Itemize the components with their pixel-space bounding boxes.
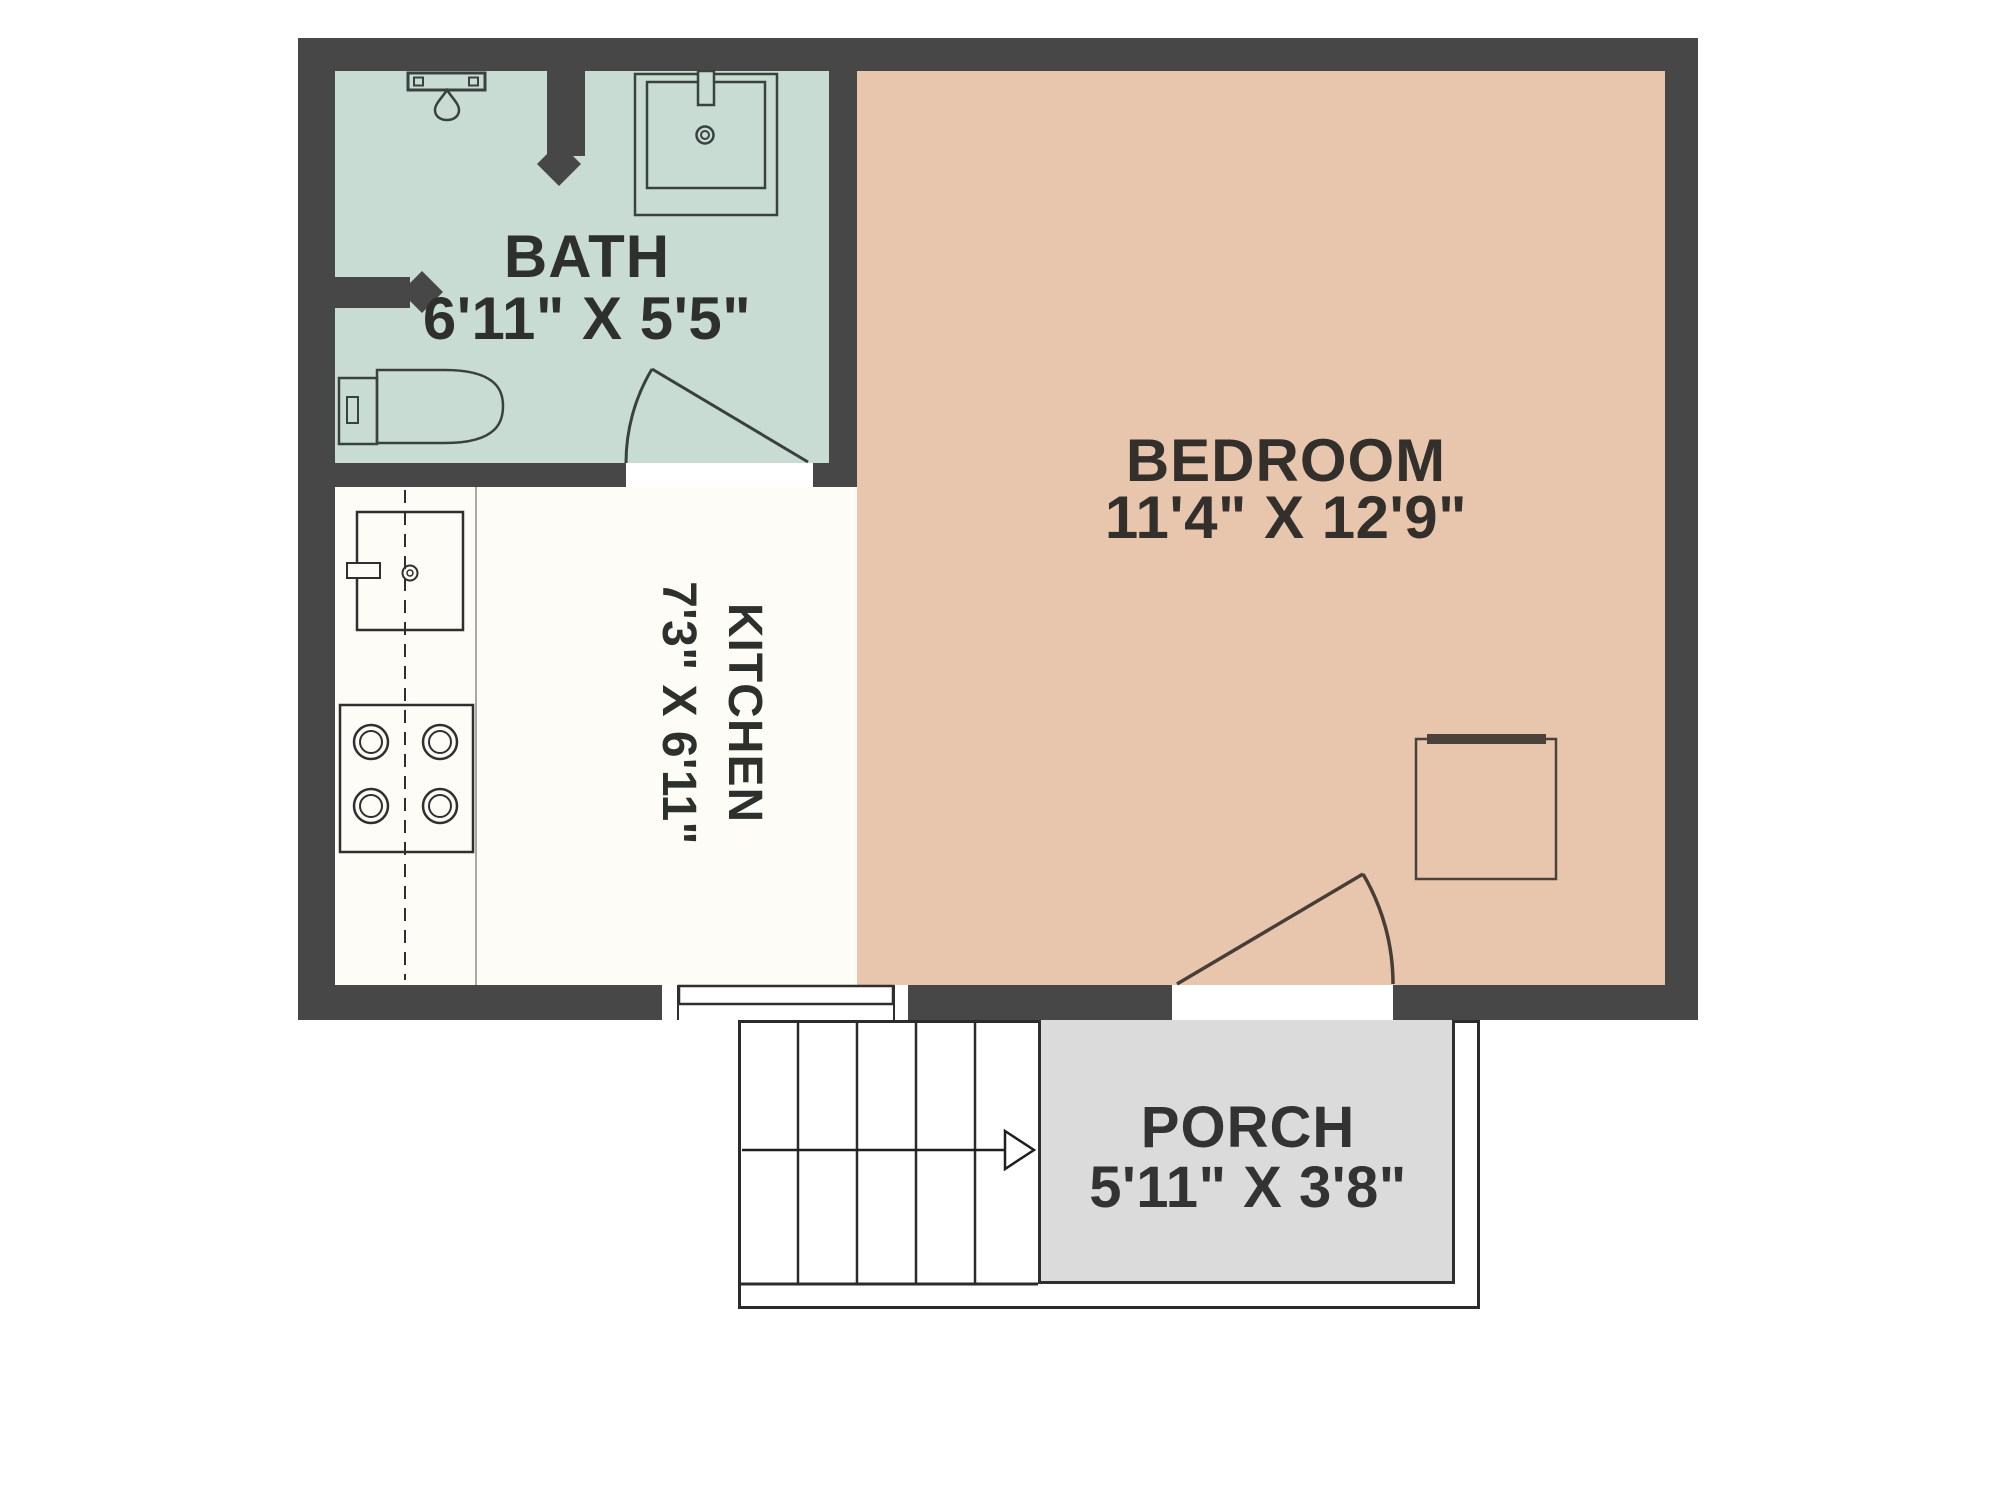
bedroom-room-dims: 11'4" X 12'9" [1105, 489, 1467, 546]
counter-dashed-line [405, 487, 476, 985]
stove-icon [340, 705, 473, 852]
direction-arrow-icon [742, 1131, 1034, 1169]
bath-room-name: BATH [423, 226, 751, 288]
bath-room-dims: 6'11" X 5'5" [423, 288, 751, 350]
bath-room-label: BATH 6'11" X 5'5" [423, 226, 751, 350]
kitchen-room-dims: 7'3" X 6'11" [645, 581, 711, 845]
wall-break-top-icon [537, 71, 585, 186]
porch-room-name: PORCH [1089, 1098, 1407, 1158]
porch-room-label: PORCH 5'11" X 3'8" [1089, 1098, 1407, 1218]
plan-linework [0, 0, 2000, 1500]
shower-icon [408, 73, 485, 120]
bedroom-room-name: BEDROOM [1105, 432, 1467, 489]
bedroom-door-swing-icon [1177, 874, 1393, 984]
sliding-door-icon [678, 985, 894, 1020]
nightstand-icon [1416, 734, 1556, 879]
stairs-icon [740, 1022, 1038, 1284]
bedroom-room-label: BEDROOM 11'4" X 12'9" [1105, 432, 1467, 546]
kitchen-room-label: KITCHEN 7'3" X 6'11" [645, 581, 777, 845]
floor-plan: BATH 6'11" X 5'5" BEDROOM 11'4" X 12'9" … [0, 0, 2000, 1500]
porch-room-dims: 5'11" X 3'8" [1089, 1158, 1407, 1218]
sink-icon [635, 71, 777, 215]
toilet-icon [339, 370, 503, 444]
kitchen-room-name: KITCHEN [711, 581, 777, 845]
bath-door-swing-icon [626, 369, 808, 463]
